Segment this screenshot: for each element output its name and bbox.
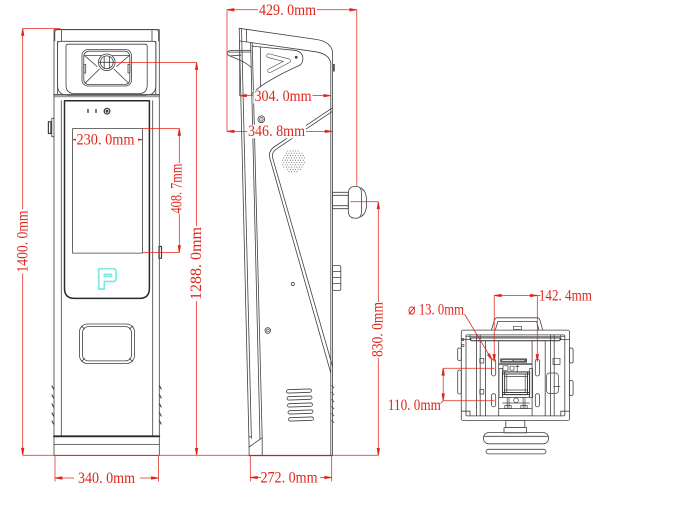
svg-text:429. 0mm: 429. 0mm (259, 2, 316, 19)
svg-text:1288. 0mm: 1288. 0mm (188, 226, 205, 300)
svg-text:304. 0mm: 304. 0mm (255, 88, 312, 105)
svg-text:230. 0mm: 230. 0mm (77, 132, 135, 149)
svg-text:340. 0mm: 340. 0mm (78, 470, 135, 487)
svg-text:272. 0mm: 272. 0mm (261, 470, 318, 487)
svg-text:830. 0mm: 830. 0mm (369, 302, 386, 357)
svg-text:408. 7mm: 408. 7mm (169, 163, 186, 213)
svg-text:⌀ 13. 0mm: ⌀ 13. 0mm (408, 301, 464, 318)
svg-text:346. 8mm: 346. 8mm (248, 123, 305, 140)
svg-text:1400. 0mm: 1400. 0mm (14, 210, 31, 272)
svg-text:110. 0mm: 110. 0mm (388, 397, 441, 414)
svg-text:142. 4mm: 142. 4mm (539, 288, 592, 305)
